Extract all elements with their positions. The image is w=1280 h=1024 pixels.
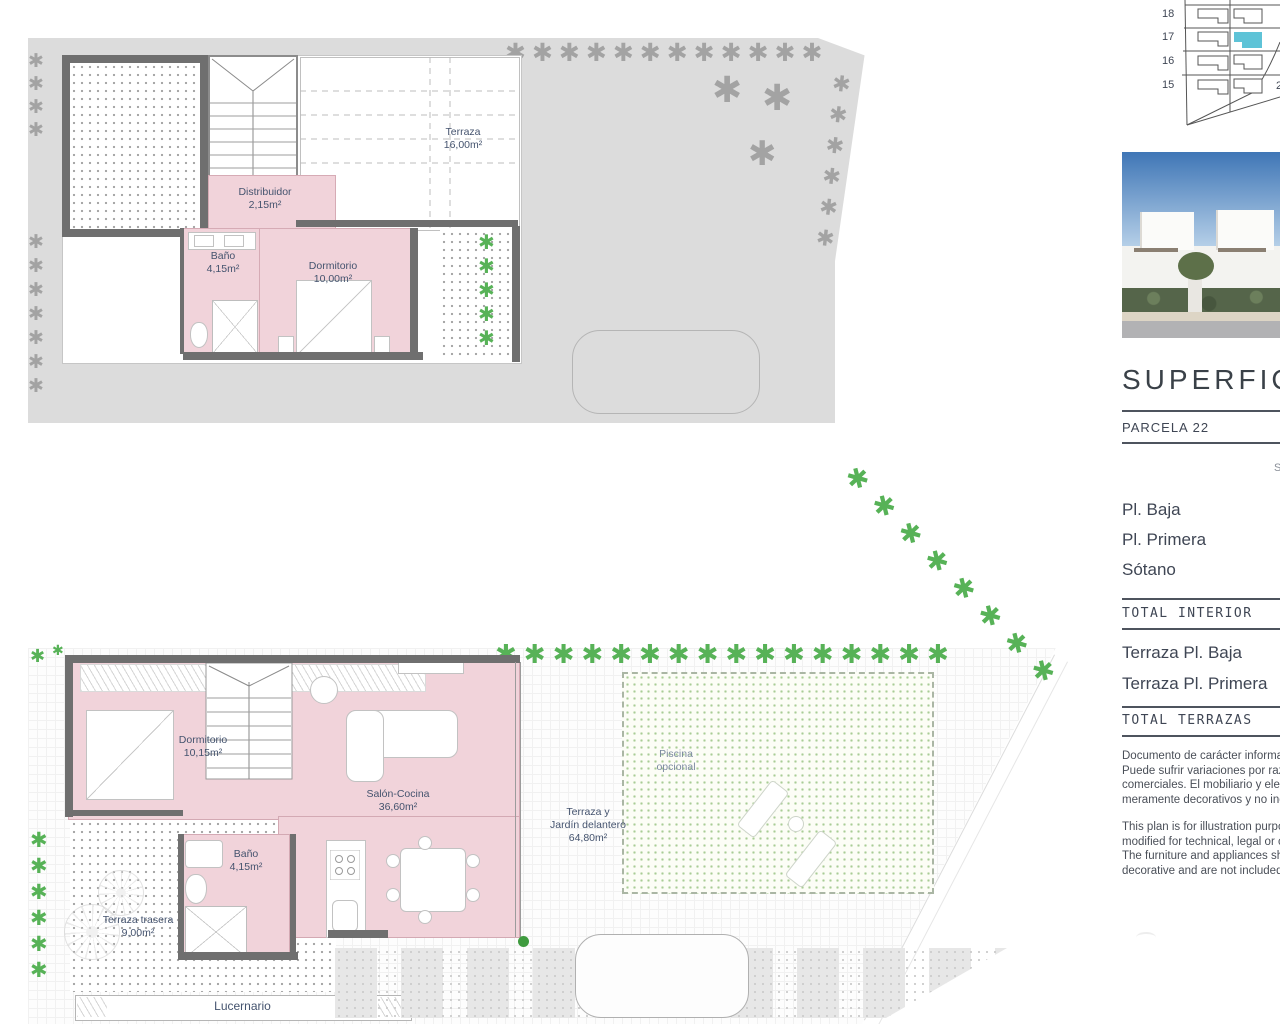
chair-icon bbox=[466, 854, 480, 868]
tree-icon: ✱ bbox=[30, 934, 48, 955]
disclaimer-line: meramente decorativos y no incl bbox=[1122, 793, 1280, 808]
sink-icon bbox=[194, 235, 214, 247]
tree-icon: ✱ bbox=[28, 305, 44, 324]
stairs-lower bbox=[205, 662, 293, 780]
floor-row: Pl. Primera bbox=[1122, 530, 1206, 550]
column-header-fragment: S bbox=[1274, 462, 1280, 474]
tree-icon: ✱ bbox=[783, 642, 805, 668]
wall bbox=[410, 228, 418, 360]
tree-icon: ✱ bbox=[668, 642, 690, 668]
shrub-strip-icon: ✱✱✱✱ bbox=[28, 52, 44, 140]
shrub-strip-icon: ✱✱✱✱✱✱✱ bbox=[28, 233, 44, 396]
total-terrazas-label: TOTAL TERRAZAS bbox=[1122, 713, 1253, 728]
tree-icon: ✱ bbox=[927, 642, 949, 668]
photo-villa-upper bbox=[1216, 210, 1274, 250]
palm-icon: ✱ bbox=[748, 134, 777, 174]
floor-row: Pl. Baja bbox=[1122, 500, 1181, 520]
pergola-patio bbox=[62, 55, 208, 237]
tree-icon: ✱ bbox=[892, 516, 927, 551]
chair-icon bbox=[386, 854, 400, 868]
site-row-label: 16 bbox=[1162, 55, 1174, 67]
tree-icon: ✱ bbox=[818, 197, 839, 221]
tree-icon: ✱ bbox=[30, 856, 48, 877]
room-label-bano-upper: Baño4,15m² bbox=[188, 250, 258, 276]
room-label-dormitorio-lower: Dormitorio10,15m² bbox=[148, 734, 258, 760]
divider bbox=[1122, 442, 1280, 444]
shower-icon bbox=[212, 300, 258, 354]
palm-icon: ✱ bbox=[712, 70, 742, 111]
tree-icon: ✱ bbox=[919, 544, 954, 579]
dining-table-icon bbox=[400, 848, 466, 912]
disclaimer-line: The furniture and appliances sho bbox=[1122, 849, 1280, 864]
tree-icon: ✱ bbox=[725, 642, 747, 668]
photo-pergola bbox=[1218, 248, 1266, 252]
disclaimer-line: decorative and are not included. bbox=[1122, 864, 1280, 879]
photo-sidewalk bbox=[1122, 312, 1280, 321]
upper-floor-plan: ✱✱✱✱✱✱✱✱✱✱✱✱ ✱✱✱✱✱✱ ✱ ✱ ✱ ✱✱✱✱ ✱✱✱✱✱✱✱ bbox=[28, 38, 873, 423]
tree-icon: ✱ bbox=[610, 642, 632, 668]
floor-row: Sótano bbox=[1122, 560, 1176, 580]
total-interior-label: TOTAL INTERIOR bbox=[1122, 606, 1253, 621]
room-label-distribuidor: Distribuidor2,15m² bbox=[210, 186, 320, 212]
site-plan: 18 17 16 15 2 bbox=[1150, 0, 1280, 140]
tree-icon: ✱ bbox=[586, 40, 607, 65]
photo-road bbox=[1122, 321, 1280, 338]
tree-icon: ✱ bbox=[640, 40, 661, 65]
wall bbox=[178, 952, 298, 960]
room-label-terraza: Terraza16,00m² bbox=[408, 126, 518, 152]
wall bbox=[73, 810, 183, 816]
tree-icon: ✱ bbox=[721, 40, 742, 65]
tree-icon: ✱ bbox=[28, 75, 44, 94]
tree-icon: ✱ bbox=[667, 40, 688, 65]
toilet-icon bbox=[190, 322, 208, 348]
disclaimer-line: Puede sufrir variaciones por razo bbox=[1122, 764, 1280, 779]
tree-icon: ✱ bbox=[28, 52, 44, 71]
terrace-row: Terraza Pl. Baja bbox=[1122, 643, 1242, 663]
chair-icon bbox=[418, 836, 432, 850]
chair-icon bbox=[418, 910, 432, 924]
tree-icon: ✱ bbox=[478, 280, 495, 300]
tree-icon: ✱ bbox=[28, 377, 44, 396]
chair-icon bbox=[466, 888, 480, 902]
tree-icon: ✱ bbox=[898, 642, 920, 668]
photo-pergola bbox=[1134, 248, 1178, 252]
tree-icon: ✱ bbox=[866, 489, 901, 524]
disclaimer-es: Documento de carácter informat Puede suf… bbox=[1122, 749, 1280, 807]
tree-icon: ✱ bbox=[28, 353, 44, 372]
tree-icon: ✱ bbox=[581, 642, 603, 668]
tree-row-icon: ✱✱✱✱✱✱✱✱✱✱✱✱✱✱✱✱ bbox=[495, 642, 949, 668]
disclaimer-line: comerciales. El mobiliario y elect bbox=[1122, 778, 1280, 793]
tree-icon: ✱ bbox=[28, 257, 44, 276]
tree-icon: ✱ bbox=[478, 232, 495, 252]
wall bbox=[65, 655, 73, 817]
wall bbox=[183, 352, 423, 360]
tree-icon: ✱ bbox=[972, 599, 1007, 634]
site-row-label: 18 bbox=[1162, 8, 1174, 20]
toilet-icon bbox=[185, 874, 207, 904]
car-outline bbox=[575, 934, 749, 1018]
car-outline bbox=[572, 330, 760, 414]
room-label-salon: Salón-Cocina36,60m² bbox=[338, 788, 458, 814]
brochure-page: ✱✱✱✱✱✱✱✱✱✱✱✱ ✱✱✱✱✱✱ ✱ ✱ ✱ ✱✱✱✱ ✱✱✱✱✱✱✱ bbox=[0, 0, 1280, 1024]
tree-icon: ✱ bbox=[478, 256, 495, 276]
site-edge-fragment: 2 bbox=[1276, 80, 1280, 92]
lower-floor-plan: ✱✱✱✱✱✱✱✱✱✱✱✱✱✱✱✱ ✱✱✱✱✱✱✱✱ ✱ ✱ ✱ ✱✱✱✱✱✱ ✱… bbox=[28, 648, 1064, 1024]
wall bbox=[65, 655, 520, 663]
window-wall bbox=[515, 662, 521, 937]
tree-icon: ✱ bbox=[28, 329, 44, 348]
disclaimer-line: modified for technical, legal or co bbox=[1122, 835, 1280, 850]
sofa-chaise-icon bbox=[346, 710, 384, 782]
tree-dot-icon bbox=[518, 936, 529, 947]
tree-icon: ✱ bbox=[639, 642, 661, 668]
shrub-icon: ✱ bbox=[30, 646, 45, 667]
tree-icon: ✱ bbox=[821, 166, 842, 190]
tree-icon: ✱ bbox=[748, 40, 769, 65]
tree-icon: ✱ bbox=[945, 571, 980, 606]
shrub-strip-icon: ✱✱✱✱✱✱ bbox=[30, 830, 48, 981]
tree-icon: ✱ bbox=[478, 328, 495, 348]
wall bbox=[296, 220, 518, 227]
wall bbox=[178, 834, 184, 958]
wall bbox=[328, 930, 388, 938]
tree-icon: ✱ bbox=[613, 40, 634, 65]
room-label-jardin: Terraza yJardín delantero64,80m² bbox=[518, 806, 658, 845]
tree-icon: ✱ bbox=[532, 40, 553, 65]
tree-icon: ✱ bbox=[831, 74, 852, 98]
tree-icon: ✱ bbox=[697, 642, 719, 668]
palm-icon: ✱ bbox=[762, 78, 792, 119]
tree-icon: ✱ bbox=[869, 642, 891, 668]
tree-icon: ✱ bbox=[812, 642, 834, 668]
wall bbox=[512, 226, 520, 362]
kitchen-sink-icon bbox=[332, 900, 358, 932]
bed-icon bbox=[296, 280, 372, 356]
room-label-dormitorio-upper: Dormitorio10,00m² bbox=[278, 260, 388, 286]
divider bbox=[1122, 410, 1280, 412]
tree-icon: ✱ bbox=[28, 233, 44, 252]
room-label-bano-lower: Baño4,15m² bbox=[208, 848, 284, 874]
divider bbox=[1122, 628, 1280, 630]
site-row-label: 15 bbox=[1162, 79, 1174, 91]
tree-icon: ✱ bbox=[30, 882, 48, 903]
tree-icon: ✱ bbox=[28, 98, 44, 117]
tree-icon: ✱ bbox=[30, 908, 48, 929]
shrub-icon: ✱ bbox=[52, 643, 64, 659]
disclaimer-line: Documento de carácter informat bbox=[1122, 749, 1280, 764]
divider bbox=[1122, 735, 1280, 737]
tree-icon: ✱ bbox=[478, 304, 495, 324]
disclaimer-en: This plan is for illustration purpos mod… bbox=[1122, 820, 1280, 878]
sink-icon bbox=[224, 235, 244, 247]
tree-icon: ✱ bbox=[28, 121, 44, 140]
tree-icon: ✱ bbox=[828, 104, 849, 128]
photo-villa-upper bbox=[1140, 212, 1194, 250]
photo-tree-crown bbox=[1178, 252, 1214, 280]
divider bbox=[1122, 598, 1280, 600]
tree-icon: ✱ bbox=[559, 40, 580, 65]
villa-photo bbox=[1122, 152, 1280, 338]
site-row-label: 17 bbox=[1162, 31, 1174, 43]
tree-icon: ✱ bbox=[839, 461, 874, 496]
tree-icon: ✱ bbox=[30, 960, 48, 981]
surface-heading: SUPERFICI bbox=[1122, 364, 1280, 400]
stove-icon bbox=[330, 850, 360, 880]
tree-icon: ✱ bbox=[775, 40, 796, 65]
patio-plants-icon: ✱✱✱✱✱ bbox=[478, 232, 495, 348]
tree-icon: ✱ bbox=[28, 281, 44, 300]
tree-icon: ✱ bbox=[841, 642, 863, 668]
tree-icon: ✱ bbox=[801, 40, 822, 65]
chair-icon bbox=[386, 888, 400, 902]
disclaimer-line: This plan is for illustration purpos bbox=[1122, 820, 1280, 835]
round-table-icon bbox=[310, 676, 338, 704]
building-lower-salon bbox=[278, 816, 520, 938]
faint-logo-mark bbox=[1136, 932, 1156, 943]
tree-icon: ✱ bbox=[694, 40, 715, 65]
shower-icon bbox=[185, 906, 247, 958]
wall bbox=[180, 228, 184, 354]
divider bbox=[1122, 706, 1280, 708]
tree-icon: ✱ bbox=[815, 228, 836, 252]
wall bbox=[290, 834, 296, 960]
tree-icon: ✱ bbox=[754, 642, 776, 668]
room-label-piscina: Piscinaopcional bbox=[628, 748, 724, 774]
highlighted-unit bbox=[1234, 32, 1262, 48]
tree-icon: ✱ bbox=[553, 642, 575, 668]
hedge-row-icon: ✱✱✱✱✱✱✱✱✱✱✱✱ bbox=[505, 40, 822, 65]
side-table-icon bbox=[788, 816, 804, 832]
tree-icon: ✱ bbox=[524, 642, 546, 668]
terrace-row: Terraza Pl. Primera bbox=[1122, 674, 1267, 694]
parcela-label: PARCELA 22 bbox=[1122, 420, 1209, 435]
tree-icon: ✱ bbox=[30, 830, 48, 851]
tree-icon: ✱ bbox=[825, 135, 846, 159]
